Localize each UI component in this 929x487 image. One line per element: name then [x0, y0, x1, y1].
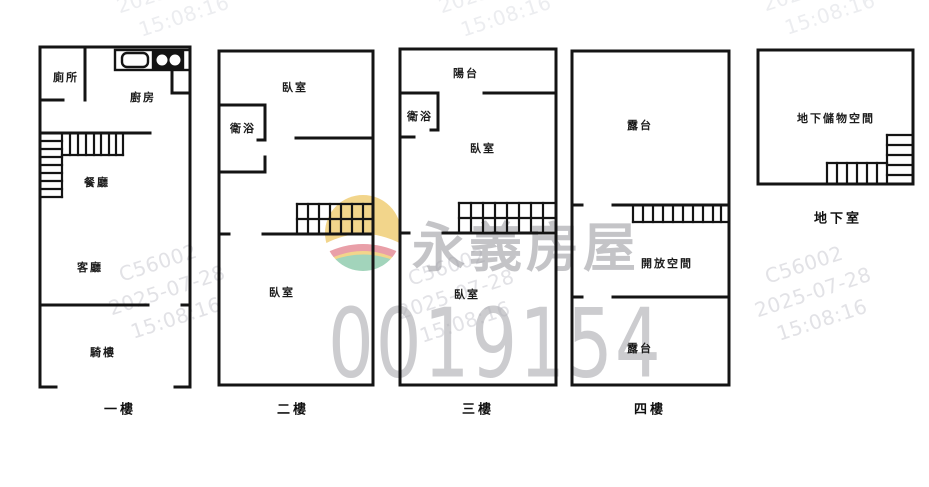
room-label-storage: 地下儲物空間: [797, 110, 875, 126]
room-label-bedroom: 臥室: [470, 140, 496, 156]
floor-caption-1f: 一樓: [104, 399, 136, 418]
room-label-bath: 衛浴: [407, 108, 433, 124]
room-label-bath: 衛浴: [230, 120, 256, 136]
room-label-dining: 餐廳: [84, 174, 110, 190]
room-label-living: 客廳: [77, 259, 103, 275]
floor-caption-3f: 三樓: [462, 399, 494, 418]
room-label-bedroom: 臥室: [454, 286, 480, 302]
room-label-bedroom: 臥室: [269, 284, 295, 300]
floor-caption-2f: 二樓: [277, 399, 309, 418]
label-layer: 廁所 廚房 餐廳 客廳 騎樓 臥室 衛浴 臥室 陽台 衛浴 臥室 臥室 露台 開…: [0, 0, 929, 487]
room-label-bedroom: 臥室: [282, 79, 308, 95]
floor-caption-4f: 四樓: [634, 399, 666, 418]
room-label-terrace: 露台: [627, 340, 653, 356]
room-label-toilet: 廁所: [53, 69, 79, 85]
room-label-arcade: 騎樓: [90, 344, 116, 360]
room-label-open-space: 開放空間: [641, 255, 693, 271]
floor-caption-basement: 地下室: [814, 208, 862, 227]
room-label-kitchen: 廚房: [130, 89, 156, 105]
floorplan-page: C56002 2025-07-28 15:08:16 C56002 2025-0…: [0, 0, 929, 487]
room-label-terrace: 露台: [627, 117, 653, 133]
room-label-balcony: 陽台: [453, 65, 479, 81]
